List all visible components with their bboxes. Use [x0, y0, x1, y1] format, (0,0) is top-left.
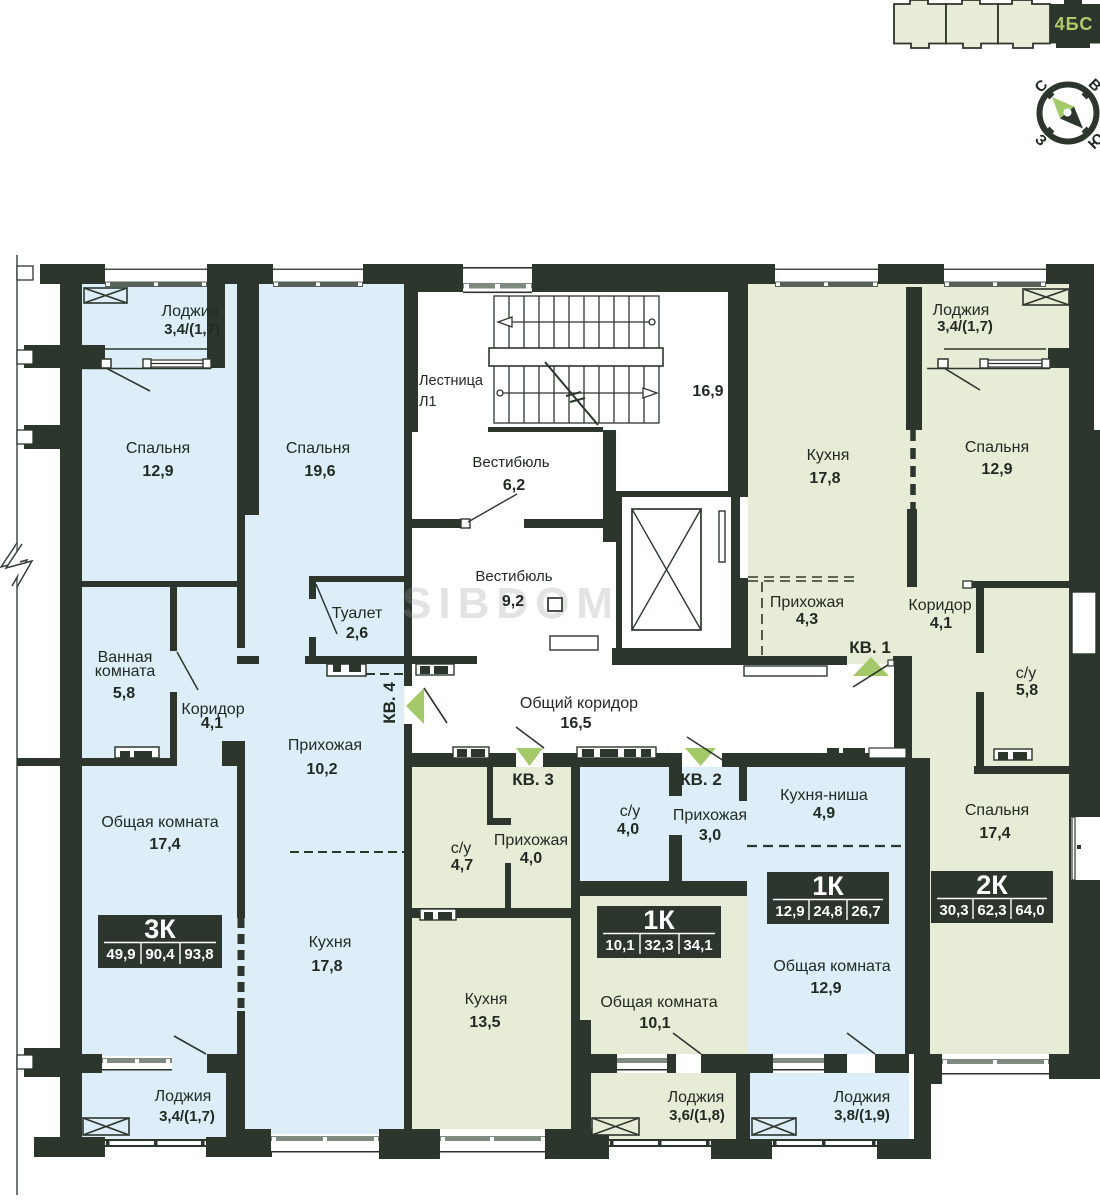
svg-text:КВ. 2: КВ. 2 [680, 770, 722, 789]
svg-text:Спальня: Спальня [126, 440, 190, 457]
svg-text:3К: 3К [144, 914, 176, 944]
svg-text:4,0: 4,0 [520, 850, 542, 867]
svg-text:1К: 1К [643, 905, 675, 935]
svg-text:Коридор: Коридор [908, 597, 971, 614]
svg-text:З: З [1031, 131, 1050, 150]
svg-text:с/у: с/у [451, 840, 471, 857]
svg-text:3,6/(1,8): 3,6/(1,8) [669, 1107, 725, 1124]
svg-text:Л1: Л1 [419, 394, 437, 410]
svg-text:с/у: с/у [1016, 665, 1036, 682]
svg-text:2К: 2К [976, 870, 1008, 900]
svg-text:26,7: 26,7 [851, 903, 880, 920]
svg-text:19,6: 19,6 [304, 463, 335, 480]
svg-text:17,4: 17,4 [979, 825, 1010, 842]
svg-text:12,9: 12,9 [775, 903, 804, 920]
svg-text:Кухня: Кухня [807, 447, 850, 464]
svg-text:Лоджия: Лоджия [155, 1088, 212, 1105]
svg-text:10,2: 10,2 [306, 761, 337, 778]
svg-text:Вестибюль: Вестибюль [472, 454, 549, 471]
svg-text:10,1: 10,1 [605, 937, 634, 954]
svg-text:3,8/(1,9): 3,8/(1,9) [834, 1107, 890, 1124]
svg-text:Лоджия: Лоджия [933, 302, 990, 319]
svg-text:1К: 1К [812, 871, 844, 901]
svg-text:Общий коридор: Общий коридор [520, 695, 638, 712]
svg-text:с/у: с/у [620, 803, 640, 820]
svg-text:Туалет: Туалет [332, 605, 383, 622]
svg-text:12,9: 12,9 [981, 461, 1012, 478]
svg-text:30,3: 30,3 [939, 902, 968, 919]
svg-text:62,3: 62,3 [977, 902, 1006, 919]
svg-text:4,3: 4,3 [796, 611, 818, 628]
svg-text:Прихожая: Прихожая [494, 832, 568, 849]
svg-text:2,6: 2,6 [346, 625, 368, 642]
svg-text:Лоджия: Лоджия [834, 1089, 891, 1106]
svg-text:Лоджия: Лоджия [668, 1089, 725, 1106]
svg-text:49,9: 49,9 [106, 946, 135, 963]
svg-text:Спальня: Спальня [286, 440, 350, 457]
svg-text:КВ. 3: КВ. 3 [512, 770, 554, 789]
svg-text:Общая комната: Общая комната [101, 814, 218, 831]
svg-text:10,1: 10,1 [639, 1015, 670, 1032]
svg-text:комната: комната [95, 663, 156, 680]
svg-text:Прихожая: Прихожая [770, 594, 844, 611]
svg-text:Прихожая: Прихожая [288, 737, 362, 754]
svg-text:Кухня: Кухня [309, 934, 352, 951]
svg-text:4БС: 4БС [1055, 14, 1094, 34]
svg-text:12,9: 12,9 [142, 463, 173, 480]
svg-text:4,1: 4,1 [930, 615, 952, 632]
svg-text:16,5: 16,5 [560, 715, 591, 732]
svg-text:5,8: 5,8 [1016, 682, 1038, 699]
svg-text:Кухня: Кухня [465, 991, 508, 1008]
svg-text:3,4/(1,7): 3,4/(1,7) [937, 318, 993, 335]
svg-text:4,7: 4,7 [451, 857, 473, 874]
svg-text:Кухня-ниша: Кухня-ниша [780, 787, 868, 804]
svg-text:3,4/(1,7): 3,4/(1,7) [159, 1108, 215, 1125]
svg-text:4,0: 4,0 [617, 821, 639, 838]
svg-text:17,8: 17,8 [809, 470, 840, 487]
svg-text:4,9: 4,9 [813, 805, 835, 822]
svg-text:13,5: 13,5 [469, 1014, 500, 1031]
svg-text:12,9: 12,9 [810, 980, 841, 997]
svg-text:Лестница: Лестница [419, 373, 484, 389]
svg-text:6,2: 6,2 [503, 477, 525, 494]
svg-text:3,4/(1,7): 3,4/(1,7) [164, 321, 220, 338]
svg-text:Лоджия: Лоджия [162, 303, 219, 320]
svg-text:4,1: 4,1 [201, 715, 223, 732]
svg-text:93,8: 93,8 [184, 946, 213, 963]
svg-text:Общая комната: Общая комната [600, 994, 717, 1011]
svg-text:Спальня: Спальня [965, 802, 1029, 819]
svg-text:КВ. 4: КВ. 4 [380, 682, 399, 724]
svg-text:17,4: 17,4 [149, 836, 180, 853]
svg-text:КВ. 1: КВ. 1 [849, 638, 891, 657]
svg-text:90,4: 90,4 [145, 946, 175, 963]
svg-text:34,1: 34,1 [683, 937, 712, 954]
svg-text:5,8: 5,8 [113, 685, 135, 702]
svg-text:17,8: 17,8 [311, 958, 342, 975]
svg-text:64,0: 64,0 [1015, 902, 1044, 919]
svg-text:24,8: 24,8 [813, 903, 842, 920]
svg-text:Прихожая: Прихожая [673, 807, 747, 824]
svg-text:Общая комната: Общая комната [773, 958, 890, 975]
svg-text:16,9: 16,9 [692, 383, 723, 400]
svg-text:Спальня: Спальня [965, 439, 1029, 456]
svg-text:9,2: 9,2 [502, 593, 524, 610]
svg-text:3,0: 3,0 [699, 827, 721, 844]
svg-text:Вестибюль: Вестибюль [475, 568, 552, 585]
svg-text:32,3: 32,3 [644, 937, 673, 954]
